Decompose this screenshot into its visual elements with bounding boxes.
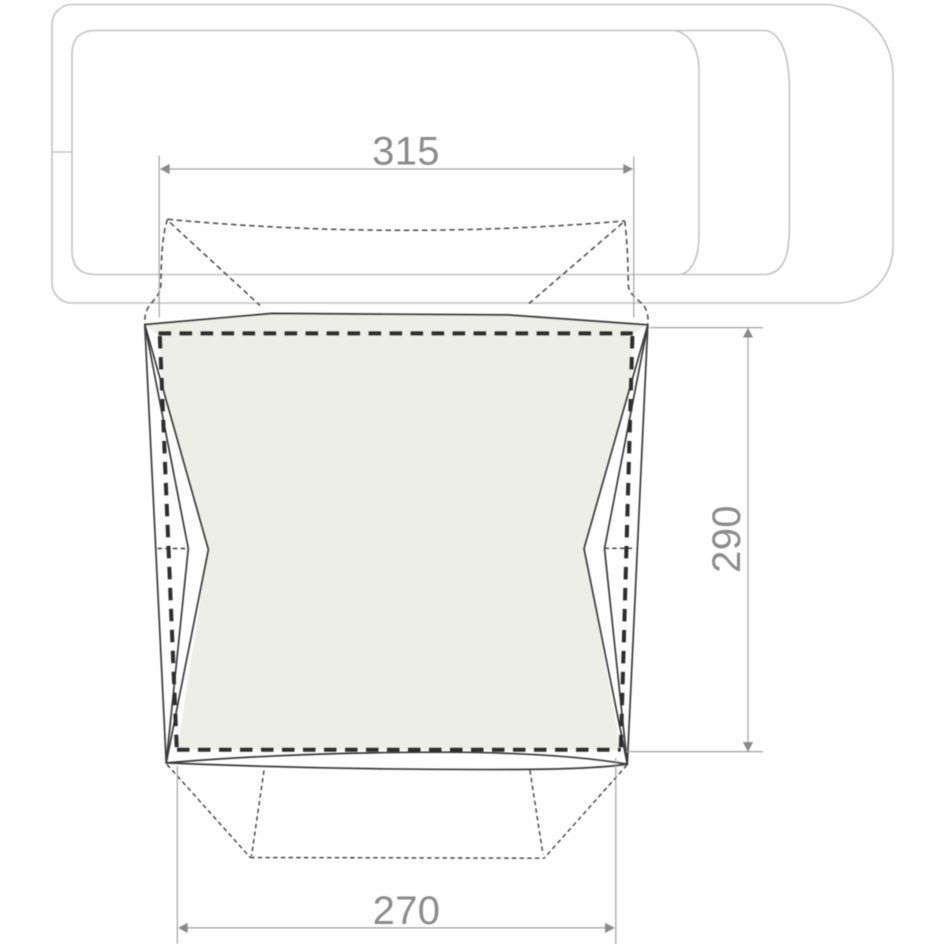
svg-text:270: 270 (373, 889, 441, 933)
svg-text:290: 290 (705, 505, 749, 573)
svg-text:315: 315 (372, 130, 440, 174)
